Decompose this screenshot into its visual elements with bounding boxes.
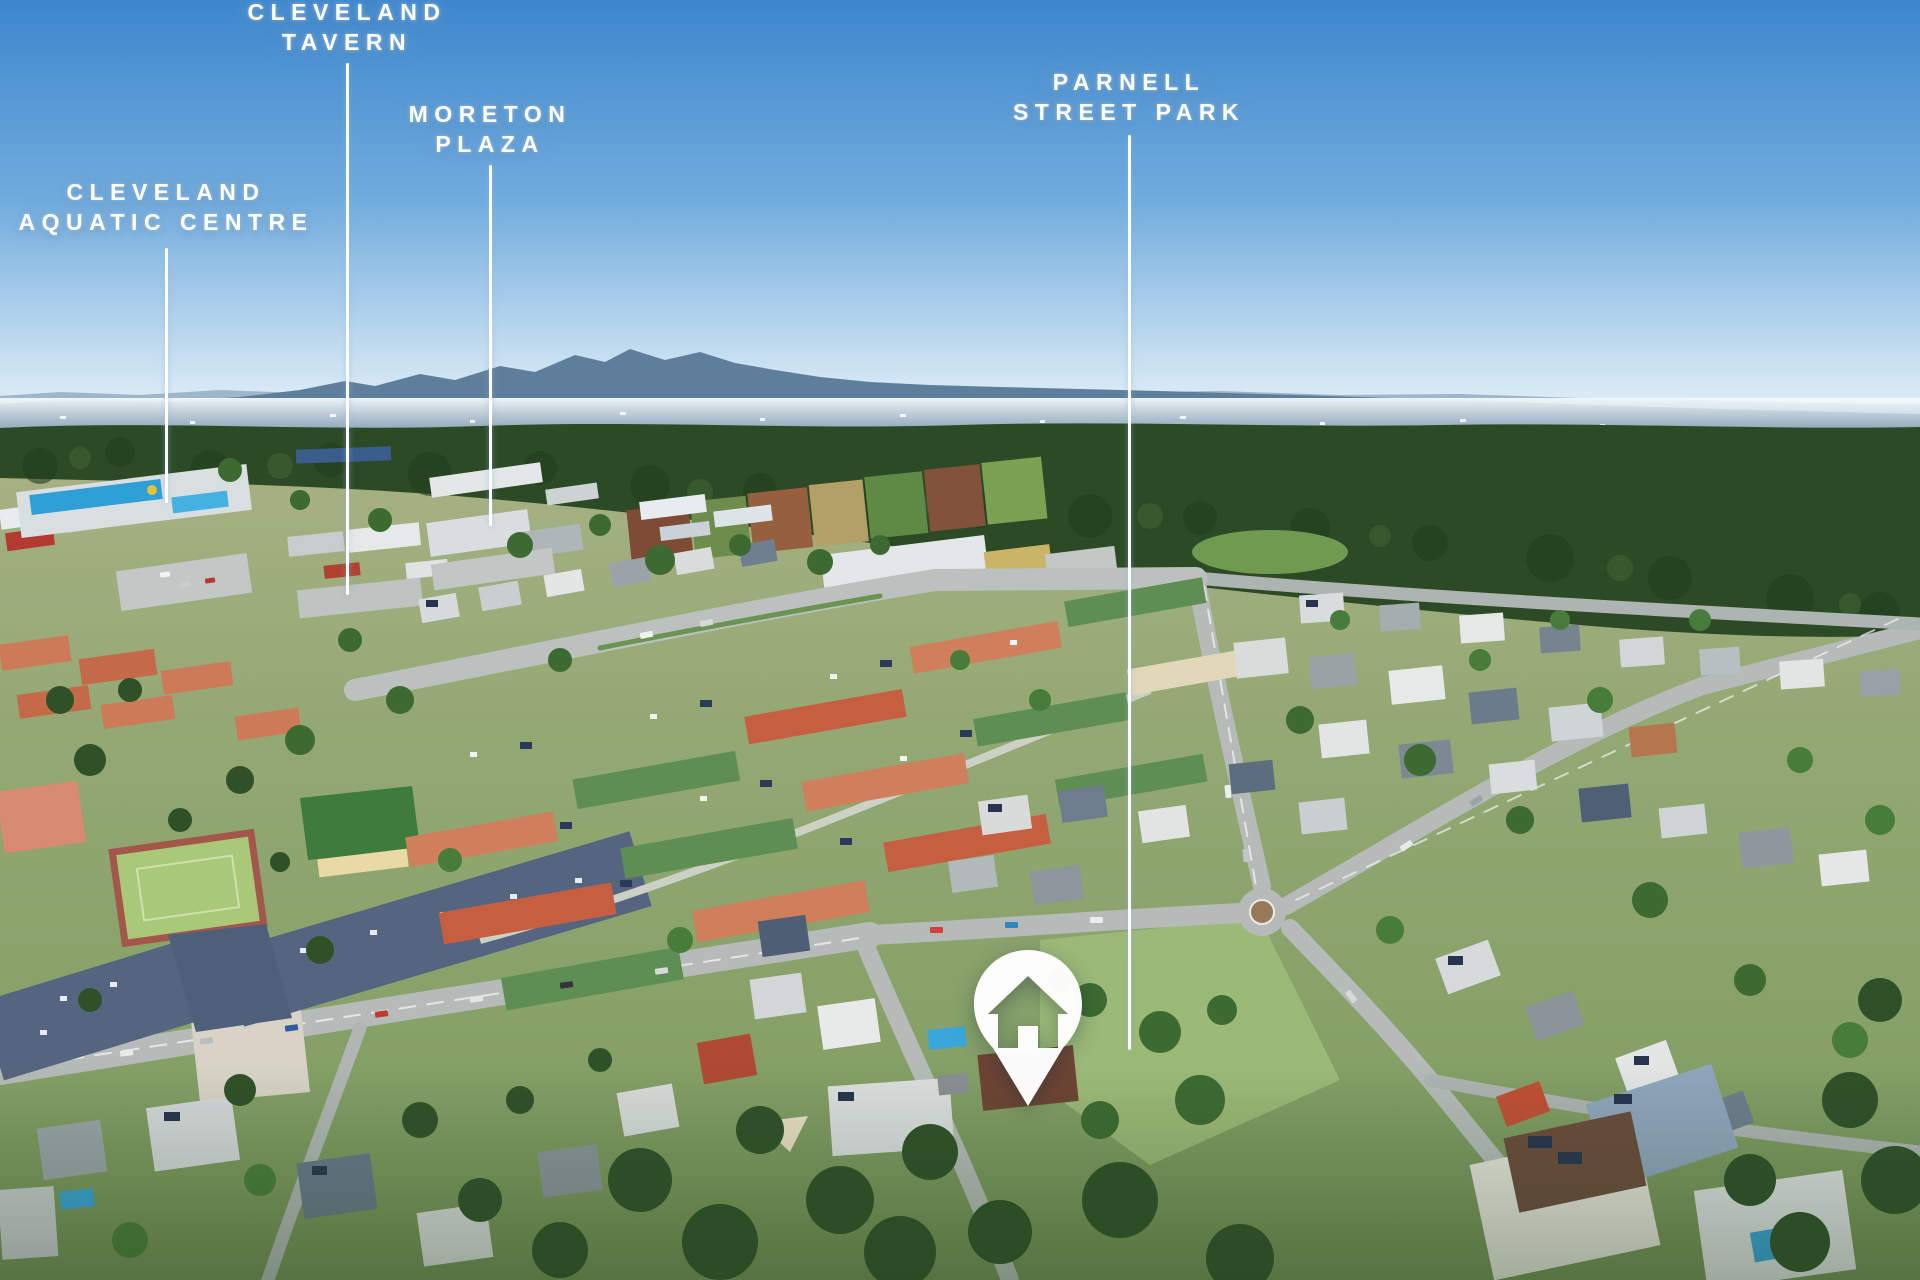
callout-text-line: PARNELL [1013, 67, 1245, 97]
callout-label-cleveland-aquatic-centre: CLEVELAND AQUATIC CENTRE [18, 177, 313, 237]
callout-label-parnell-street-park: PARNELL STREET PARK [1013, 67, 1245, 127]
callout-text-line: STREET PARK [1013, 97, 1245, 127]
callout-text-line: PLAZA [409, 129, 572, 159]
callout-line-cleveland-aquatic-centre [165, 248, 168, 503]
house-icon [974, 950, 1082, 1106]
callout-text-line: CLEVELAND [247, 0, 446, 27]
aerial-photo: CLEVELAND TAVERN MORETON PLAZA CLEVELAND… [0, 0, 1920, 1280]
callout-label-moreton-plaza: MORETON PLAZA [409, 99, 572, 159]
callout-text-line: TAVERN [247, 27, 446, 57]
callout-line-cleveland-tavern [346, 63, 349, 595]
callout-text-line: CLEVELAND [18, 177, 313, 207]
callout-text-line: AQUATIC CENTRE [18, 207, 313, 237]
property-location-pin [972, 948, 1084, 1108]
callout-text-line: MORETON [409, 99, 572, 129]
callout-line-parnell-street-park [1128, 135, 1131, 1050]
callout-line-moreton-plaza [489, 165, 492, 526]
callout-label-cleveland-tavern: CLEVELAND TAVERN [247, 0, 446, 57]
